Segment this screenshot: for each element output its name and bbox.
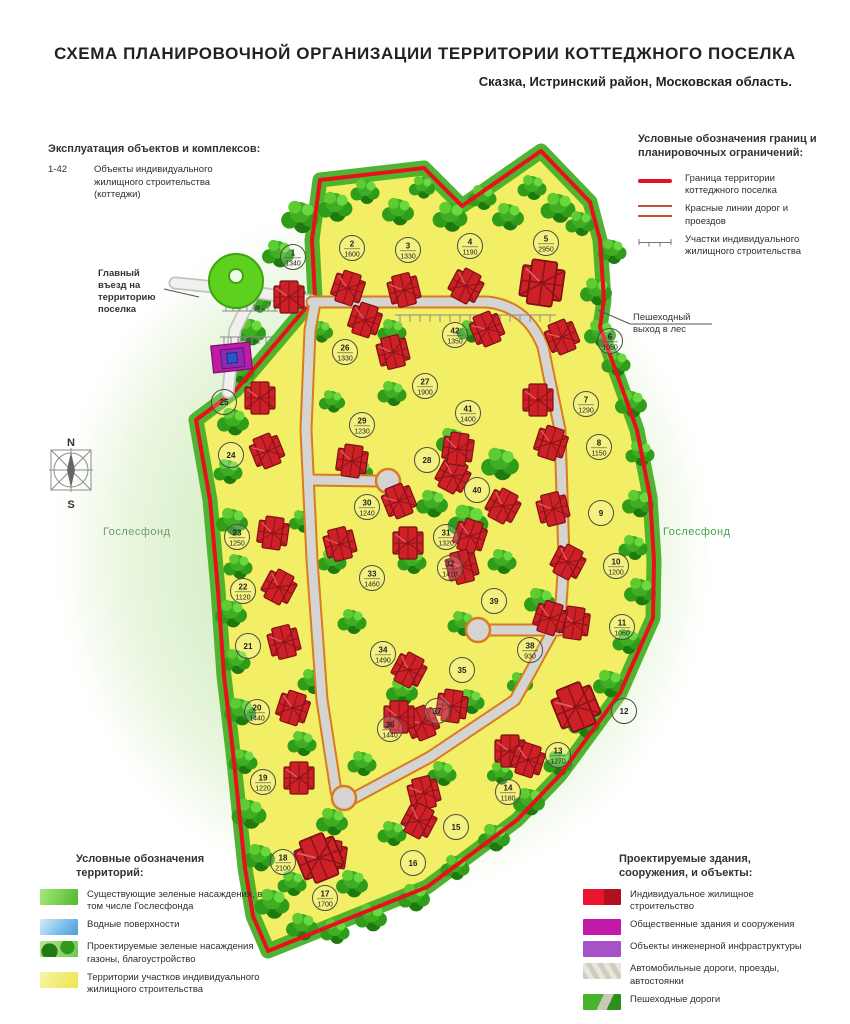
plot-marker-20: 201440 [245, 700, 270, 725]
plot-ticks-swatch [638, 234, 676, 250]
compass-north-label: N [67, 437, 75, 449]
svg-text:2: 2 [350, 240, 355, 249]
house-plot-19 [284, 762, 314, 794]
plot-marker-34: 341490 [371, 642, 396, 667]
legend-boundaries: Условные обозначения границ и планировоч… [638, 132, 838, 265]
plot-marker-37: 37 [425, 699, 450, 724]
housing-plots-label: Территории участков индивидуального жили… [87, 972, 277, 997]
svg-text:21: 21 [244, 642, 253, 651]
plot-range-label: Объекты индивидуального жилищного строит… [94, 164, 259, 201]
legend-objects: Проектируемые здания, сооружения, и объе… [583, 852, 843, 1016]
individual-housing-label: Индивидуальное жилищное строительство [630, 889, 820, 914]
house-plot-7 [523, 384, 553, 416]
svg-text:1330: 1330 [337, 356, 353, 363]
infrastructure-label: Объекты инженерной инфраструктуры [630, 941, 802, 953]
svg-text:8: 8 [597, 439, 602, 448]
plot-marker-12: 12 [612, 699, 637, 724]
svg-text:27: 27 [421, 378, 430, 387]
svg-text:1410: 1410 [442, 572, 458, 579]
plot-marker-29: 291230 [350, 413, 375, 438]
boundary-line-swatch [638, 173, 676, 189]
svg-text:17: 17 [321, 890, 330, 899]
plot-marker-19: 191220 [251, 770, 276, 795]
svg-text:40: 40 [473, 486, 482, 495]
svg-text:1120: 1120 [235, 595, 250, 602]
svg-text:25: 25 [220, 398, 229, 407]
plot-marker-14: 141180 [496, 780, 521, 805]
plot-marker-17: 171700 [313, 886, 338, 911]
boundary-line-label: Граница территории коттеджного поселка [685, 173, 805, 198]
plot-marker-30: 301240 [355, 495, 380, 520]
plot-marker-10: 101200 [604, 554, 629, 579]
plot-marker-38: 38930 [518, 638, 543, 663]
svg-text:28: 28 [423, 456, 432, 465]
housing-plots-swatch [40, 972, 78, 988]
house-plot-1 [274, 281, 304, 313]
svg-text:1320: 1320 [438, 541, 454, 548]
svg-text:39: 39 [490, 597, 499, 606]
plot-marker-16: 16 [401, 851, 426, 876]
svg-text:2950: 2950 [538, 247, 554, 254]
public-buildings-swatch [583, 919, 621, 935]
svg-text:41: 41 [464, 405, 473, 414]
planned-greenery-label: Проектируемые зеленые насаждения газоны,… [87, 941, 277, 966]
svg-text:1290: 1290 [578, 408, 594, 415]
svg-text:1440: 1440 [249, 716, 265, 723]
legend-territories: Условные обозначения территорий: Существ… [40, 852, 300, 1003]
svg-text:1700: 1700 [317, 902, 333, 909]
plot-marker-36: 361440 [378, 717, 403, 742]
svg-text:1340: 1340 [285, 261, 301, 268]
page-subtitle: Сказка, Истринский район, Московская обл… [0, 74, 850, 89]
existing-greenery-label: Существующие зеленые насаждения, в том ч… [87, 889, 277, 914]
plot-range: 1-42 [48, 164, 94, 175]
plot-ticks-icon [638, 236, 672, 248]
svg-text:23: 23 [233, 529, 242, 538]
legend-territories-heading: Условные обозначения территорий: [76, 852, 256, 881]
plot-marker-4: 41190 [458, 234, 483, 259]
site-plan-page: 1134021600313304119052950610507129081150… [0, 0, 850, 1024]
svg-text:26: 26 [341, 344, 350, 353]
svg-text:20: 20 [253, 704, 262, 713]
svg-text:35: 35 [458, 666, 467, 675]
plot-marker-15: 15 [444, 815, 469, 840]
red-lines-swatch [638, 203, 676, 219]
svg-text:11: 11 [618, 619, 627, 628]
svg-text:1460: 1460 [364, 582, 380, 589]
water-surfaces-swatch [40, 919, 78, 935]
plot-marker-33: 331460 [360, 566, 385, 591]
entrance-roundabout [209, 254, 263, 308]
legend-exploitation-heading: Эксплуатация объектов и комплексов: [48, 142, 288, 156]
svg-text:15: 15 [452, 823, 461, 832]
plot-marker-21: 21 [236, 634, 261, 659]
svg-text:1050: 1050 [602, 345, 618, 352]
compass-rose [49, 448, 93, 492]
svg-text:1350: 1350 [447, 339, 463, 346]
plot-marker-8: 81150 [587, 435, 612, 460]
svg-text:1150: 1150 [591, 451, 606, 458]
plot-marker-26: 261330 [333, 340, 358, 365]
svg-text:1180: 1180 [500, 796, 515, 803]
svg-text:1190: 1190 [462, 250, 477, 257]
svg-text:24: 24 [227, 451, 236, 460]
main-entrance-label: Главный въезд на территорию поселка [98, 268, 168, 316]
svg-text:37: 37 [433, 707, 442, 716]
svg-text:19: 19 [259, 774, 268, 783]
roads-swatch [583, 963, 621, 979]
svg-text:29: 29 [358, 417, 367, 426]
existing-greenery-swatch [40, 889, 78, 905]
svg-text:1400: 1400 [460, 417, 476, 424]
water-surfaces-label: Водные поверхности [87, 919, 179, 931]
plot-marker-2: 21600 [340, 236, 365, 261]
svg-text:30: 30 [363, 499, 372, 508]
svg-text:3: 3 [406, 242, 411, 251]
svg-text:13: 13 [554, 747, 563, 756]
plot-marker-31: 311320 [434, 525, 459, 550]
svg-text:42: 42 [451, 327, 460, 336]
svg-text:14: 14 [504, 784, 513, 793]
plot-marker-32: 321410 [438, 556, 463, 581]
legend-boundaries-heading: Условные обозначения границ и планировоч… [638, 132, 823, 161]
plot-marker-42: 421350 [443, 323, 468, 348]
header: СХЕМА ПЛАНИРОВОЧНОЙ ОРГАНИЗАЦИИ ТЕРРИТОР… [0, 44, 850, 89]
svg-text:930: 930 [524, 654, 536, 661]
plot-marker-28: 28 [415, 448, 440, 473]
individual-housing-swatch [583, 889, 621, 905]
gosles-right-label: Гослесфонд [663, 526, 731, 540]
svg-text:33: 33 [368, 570, 377, 579]
plot-marker-27: 271900 [413, 374, 438, 399]
public-buildings-label: Общественные здания и сооружения [630, 919, 794, 931]
plot-marker-7: 71290 [574, 392, 599, 417]
svg-text:1330: 1330 [400, 254, 416, 261]
footpaths-swatch [583, 994, 621, 1010]
svg-text:10: 10 [612, 558, 621, 567]
legend-objects-heading: Проектируемые здания, сооружения, и объе… [619, 852, 809, 881]
svg-text:1250: 1250 [229, 541, 245, 548]
red-lines-label: Красные линии дорог и проездов [685, 203, 815, 228]
plot-marker-24: 24 [219, 443, 244, 468]
plot-marker-9: 9 [589, 501, 614, 526]
svg-text:32: 32 [446, 560, 455, 569]
house-plot-31 [393, 527, 423, 559]
plot-marker-11: 111060 [610, 615, 635, 640]
house-plot-25 [245, 382, 275, 414]
svg-text:1600: 1600 [344, 252, 360, 259]
svg-text:1240: 1240 [359, 511, 375, 518]
infrastructure-building [211, 342, 253, 373]
plot-marker-6: 61050 [598, 329, 623, 354]
svg-text:12: 12 [620, 707, 629, 716]
plot-marker-35: 35 [450, 658, 475, 683]
plot-marker-39: 39 [482, 589, 507, 614]
plot-marker-25: 25 [212, 390, 237, 415]
svg-text:22: 22 [239, 583, 248, 592]
roads-label: Автомобильные дороги, проезды, автостоян… [630, 963, 820, 988]
svg-text:6: 6 [608, 333, 613, 342]
svg-text:4: 4 [468, 238, 473, 247]
svg-text:1060: 1060 [614, 631, 630, 638]
plot-marker-23: 231250 [225, 525, 250, 550]
svg-text:36: 36 [386, 721, 395, 730]
svg-text:31: 31 [442, 529, 451, 538]
svg-text:1900: 1900 [417, 390, 433, 397]
plot-marker-22: 221120 [231, 579, 256, 604]
legend-exploitation: Эксплуатация объектов и комплексов: 1-42… [48, 142, 288, 207]
svg-text:7: 7 [584, 396, 589, 405]
svg-text:1490: 1490 [375, 658, 391, 665]
svg-text:38: 38 [526, 642, 535, 651]
svg-text:1230: 1230 [354, 429, 370, 436]
svg-text:5: 5 [544, 235, 549, 244]
svg-text:1200: 1200 [608, 570, 624, 577]
plot-ticks-label: Участки индивидуального жилищного строит… [685, 234, 815, 259]
gosles-left-label: Гослесфонд [103, 526, 171, 540]
plot-marker-13: 131270 [546, 743, 571, 768]
page-title: СХЕМА ПЛАНИРОВОЧНОЙ ОРГАНИЗАЦИИ ТЕРРИТОР… [0, 44, 850, 64]
pedestrian-exit-label: Пешеходный выход в лес [633, 312, 713, 336]
infrastructure-swatch [583, 941, 621, 957]
planned-greenery-swatch [40, 941, 78, 957]
svg-text:1440: 1440 [382, 733, 398, 740]
svg-text:1: 1 [291, 249, 296, 258]
svg-text:16: 16 [409, 859, 418, 868]
plot-marker-41: 411400 [456, 401, 481, 426]
compass-south-label: S [67, 499, 74, 511]
svg-text:9: 9 [599, 509, 604, 518]
plot-marker-40: 40 [465, 478, 490, 503]
svg-text:1270: 1270 [550, 759, 566, 766]
footpaths-label: Пешеходные дороги [630, 994, 720, 1006]
plot-marker-3: 31330 [396, 238, 421, 263]
plot-marker-5: 52950 [534, 231, 559, 256]
svg-text:34: 34 [379, 646, 388, 655]
plot-marker-1: 11340 [281, 245, 306, 270]
svg-text:1220: 1220 [255, 786, 271, 793]
